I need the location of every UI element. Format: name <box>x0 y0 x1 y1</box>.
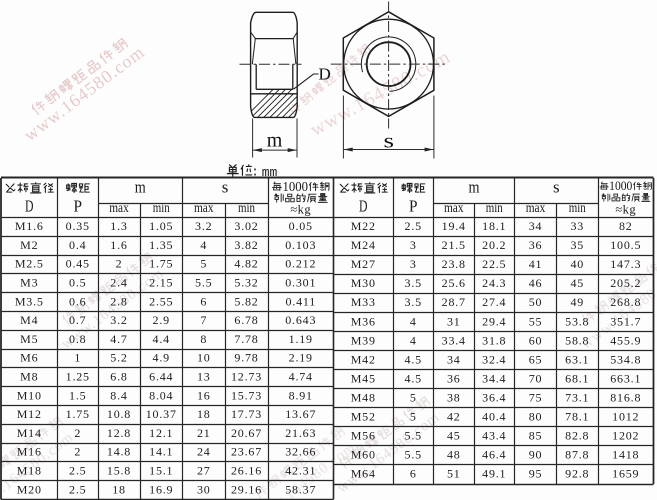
svg-text:1.75: 1.75 <box>66 407 90 421</box>
svg-text:M8: M8 <box>20 370 38 384</box>
svg-text:5.82: 5.82 <box>234 294 258 308</box>
svg-text:33.4: 33.4 <box>442 333 466 347</box>
svg-text:0.212: 0.212 <box>285 257 316 271</box>
svg-text:m: m <box>469 178 480 197</box>
svg-text:10.37: 10.37 <box>146 407 177 421</box>
svg-text:31.8: 31.8 <box>482 333 506 347</box>
svg-text:7.78: 7.78 <box>234 332 258 346</box>
svg-text:25.6: 25.6 <box>442 276 466 290</box>
svg-text:4.9: 4.9 <box>153 351 170 365</box>
svg-text:3.82: 3.82 <box>234 238 258 252</box>
svg-text:6: 6 <box>410 467 417 481</box>
svg-text:1.19: 1.19 <box>289 332 313 346</box>
svg-text:min: min <box>569 201 586 216</box>
svg-text:73.1: 73.1 <box>565 391 589 405</box>
svg-text:7: 7 <box>200 313 207 327</box>
svg-text:43.4: 43.4 <box>482 429 506 443</box>
svg-text:4.74: 4.74 <box>289 370 313 384</box>
svg-text:27.4: 27.4 <box>482 295 506 309</box>
svg-text:2: 2 <box>116 257 123 271</box>
svg-text:min: min <box>238 201 255 216</box>
svg-text:12.8: 12.8 <box>107 426 131 440</box>
svg-text:M36: M36 <box>351 314 376 328</box>
svg-text:23.67: 23.67 <box>231 445 262 459</box>
svg-text:5.5: 5.5 <box>405 448 422 462</box>
svg-text:13.67: 13.67 <box>285 407 316 421</box>
svg-text:0.301: 0.301 <box>285 276 316 290</box>
svg-text:46: 46 <box>529 276 543 290</box>
svg-text:34: 34 <box>529 219 543 233</box>
svg-text:63.1: 63.1 <box>565 352 589 366</box>
svg-text:68.1: 68.1 <box>565 371 589 385</box>
svg-text:0.103: 0.103 <box>285 238 316 252</box>
svg-text:40.4: 40.4 <box>482 410 506 424</box>
svg-text:38: 38 <box>447 391 461 405</box>
svg-text:M16: M16 <box>17 445 42 459</box>
svg-text:92.8: 92.8 <box>565 467 589 481</box>
svg-text:5.32: 5.32 <box>234 276 258 290</box>
svg-text:4: 4 <box>410 333 417 347</box>
svg-text:3.5: 3.5 <box>405 276 422 290</box>
svg-text:s: s <box>553 178 560 197</box>
svg-text:42.31: 42.31 <box>285 464 316 478</box>
svg-text:1.25: 1.25 <box>66 370 90 384</box>
svg-text:24: 24 <box>197 445 211 459</box>
svg-text:45: 45 <box>447 429 461 443</box>
svg-text:205.2: 205.2 <box>610 276 641 290</box>
svg-text:15.8: 15.8 <box>107 464 131 478</box>
svg-text:49.1: 49.1 <box>482 467 506 481</box>
svg-text:49: 49 <box>570 295 584 309</box>
svg-text:min: min <box>153 201 170 216</box>
svg-text:1.75: 1.75 <box>149 257 173 271</box>
svg-text:78.1: 78.1 <box>565 410 589 424</box>
svg-text:17.73: 17.73 <box>231 407 262 421</box>
svg-text:M1.6: M1.6 <box>15 219 44 233</box>
svg-text:2.9: 2.9 <box>153 313 170 327</box>
svg-text:16: 16 <box>197 388 211 402</box>
svg-text:10: 10 <box>197 351 211 365</box>
svg-text:0.5: 0.5 <box>69 276 86 290</box>
svg-text:2.8: 2.8 <box>110 294 127 308</box>
svg-text:2.55: 2.55 <box>149 294 173 308</box>
svg-text:2: 2 <box>74 445 81 459</box>
svg-text:87.8: 87.8 <box>565 448 589 462</box>
svg-text:55: 55 <box>529 314 543 328</box>
svg-text:48: 48 <box>447 448 461 462</box>
svg-text:31: 31 <box>447 314 461 328</box>
svg-text:0.4: 0.4 <box>69 238 86 252</box>
svg-text:M56: M56 <box>351 429 376 443</box>
svg-text:M3.5: M3.5 <box>15 294 44 308</box>
svg-text:6.8: 6.8 <box>110 370 127 384</box>
svg-text:M48: M48 <box>351 391 376 405</box>
svg-text:21: 21 <box>197 426 211 440</box>
svg-text:max: max <box>194 201 214 216</box>
svg-text:82.8: 82.8 <box>565 429 589 443</box>
svg-text:M27: M27 <box>351 257 376 271</box>
svg-text:22.5: 22.5 <box>482 257 506 271</box>
svg-text:15.1: 15.1 <box>149 464 173 478</box>
svg-text:75: 75 <box>529 391 543 405</box>
svg-text:14.8: 14.8 <box>107 445 131 459</box>
svg-text:8: 8 <box>200 332 207 346</box>
svg-text:max: max <box>444 201 464 216</box>
svg-text:M30: M30 <box>351 276 376 290</box>
svg-text:34: 34 <box>447 352 461 366</box>
svg-text:3: 3 <box>410 257 417 271</box>
svg-text:36: 36 <box>447 371 461 385</box>
svg-text:816.8: 816.8 <box>610 391 641 405</box>
svg-text:max: max <box>526 201 546 216</box>
svg-text:1202: 1202 <box>612 429 639 443</box>
svg-text:18: 18 <box>197 407 211 421</box>
svg-text:1.05: 1.05 <box>149 219 173 233</box>
svg-text:90: 90 <box>529 448 543 462</box>
svg-text:30: 30 <box>197 482 211 496</box>
svg-text:21.5: 21.5 <box>442 238 466 252</box>
svg-text:5.5: 5.5 <box>195 276 212 290</box>
svg-text:41: 41 <box>529 257 543 271</box>
svg-text:3.5: 3.5 <box>405 295 422 309</box>
svg-text:2.5: 2.5 <box>69 464 86 478</box>
svg-text:M4: M4 <box>20 313 38 327</box>
svg-text:M18: M18 <box>17 464 42 478</box>
svg-text:4: 4 <box>410 314 417 328</box>
svg-text:m: m <box>135 178 146 197</box>
svg-text:26.16: 26.16 <box>231 464 262 478</box>
svg-text:14.1: 14.1 <box>149 445 173 459</box>
svg-text:M60: M60 <box>351 448 376 462</box>
svg-text:4.4: 4.4 <box>153 332 170 346</box>
svg-text:M33: M33 <box>351 295 376 309</box>
svg-text:351.7: 351.7 <box>610 314 641 328</box>
svg-text:M45: M45 <box>351 371 376 385</box>
svg-text:0.643: 0.643 <box>285 313 316 327</box>
svg-text:M24: M24 <box>351 238 376 252</box>
svg-text:1418: 1418 <box>612 448 639 462</box>
svg-text:65: 65 <box>529 352 543 366</box>
svg-text:M22: M22 <box>351 219 376 233</box>
svg-text:≈kg: ≈kg <box>290 203 311 217</box>
svg-text:663.1: 663.1 <box>610 371 641 385</box>
svg-text:5.2: 5.2 <box>110 351 127 365</box>
svg-text:2.19: 2.19 <box>289 351 313 365</box>
svg-text:D: D <box>319 65 331 84</box>
svg-text:35: 35 <box>570 238 584 252</box>
svg-text:147.3: 147.3 <box>610 257 641 271</box>
svg-text:20.67: 20.67 <box>231 426 262 440</box>
svg-text:M6: M6 <box>20 351 38 365</box>
svg-text:5: 5 <box>410 410 417 424</box>
svg-text:M5: M5 <box>20 332 38 346</box>
svg-text:1000: 1000 <box>609 179 632 193</box>
svg-text:4.7: 4.7 <box>110 332 127 346</box>
svg-text:21.63: 21.63 <box>285 426 316 440</box>
svg-text:2.5: 2.5 <box>405 219 422 233</box>
svg-text:M52: M52 <box>351 410 376 424</box>
svg-text:min: min <box>486 201 503 216</box>
svg-text:s: s <box>222 178 229 197</box>
svg-text:1659: 1659 <box>612 467 639 481</box>
svg-text:46.4: 46.4 <box>482 448 506 462</box>
svg-text:D: D <box>25 197 34 216</box>
svg-text:6.44: 6.44 <box>149 370 173 384</box>
svg-text:P: P <box>409 197 418 216</box>
svg-text:1: 1 <box>74 351 81 365</box>
svg-text:4.82: 4.82 <box>234 257 258 271</box>
svg-text:20.2: 20.2 <box>482 238 506 252</box>
svg-text:32.66: 32.66 <box>285 445 316 459</box>
svg-text:40: 40 <box>570 257 584 271</box>
svg-text:4: 4 <box>200 238 207 252</box>
svg-text:3.2: 3.2 <box>110 313 127 327</box>
svg-text:1012: 1012 <box>612 410 639 424</box>
svg-text:268.8: 268.8 <box>610 295 641 309</box>
svg-text:29.16: 29.16 <box>231 482 262 496</box>
svg-text:3.2: 3.2 <box>195 219 212 233</box>
svg-text:50: 50 <box>529 295 543 309</box>
svg-text:42: 42 <box>447 410 461 424</box>
svg-text:36: 36 <box>529 238 543 252</box>
svg-text:3: 3 <box>410 238 417 252</box>
svg-text:58.37: 58.37 <box>285 482 316 496</box>
svg-text:0.35: 0.35 <box>66 219 90 233</box>
svg-text:12.1: 12.1 <box>149 426 173 440</box>
svg-text:0.8: 0.8 <box>69 332 86 346</box>
svg-text:M3: M3 <box>20 276 38 290</box>
svg-text:5.5: 5.5 <box>405 429 422 443</box>
svg-text:85: 85 <box>529 429 543 443</box>
svg-text:2.4: 2.4 <box>110 276 127 290</box>
svg-text:80: 80 <box>529 410 543 424</box>
svg-text:4.5: 4.5 <box>405 371 422 385</box>
svg-text:M39: M39 <box>351 333 376 347</box>
svg-text:8.91: 8.91 <box>289 388 313 402</box>
svg-text:1.5: 1.5 <box>69 388 86 402</box>
svg-text:51: 51 <box>447 467 461 481</box>
svg-text:M12: M12 <box>17 407 42 421</box>
svg-text:1.3: 1.3 <box>110 219 127 233</box>
svg-text:82: 82 <box>619 219 633 233</box>
svg-text:28.7: 28.7 <box>442 295 466 309</box>
svg-text:8.4: 8.4 <box>110 388 127 402</box>
svg-text:23.8: 23.8 <box>442 257 466 271</box>
svg-text:29.4: 29.4 <box>482 314 506 328</box>
svg-text:0.411: 0.411 <box>285 294 316 308</box>
svg-text:53.8: 53.8 <box>565 314 589 328</box>
svg-text:12.73: 12.73 <box>231 370 262 384</box>
svg-text:M14: M14 <box>17 426 42 440</box>
svg-text:s: s <box>384 131 395 153</box>
svg-text:0.7: 0.7 <box>69 313 86 327</box>
svg-text:0.45: 0.45 <box>66 257 90 271</box>
svg-text:70: 70 <box>529 371 543 385</box>
svg-text:60: 60 <box>529 333 543 347</box>
svg-text:1000: 1000 <box>282 179 308 194</box>
svg-text:0.6: 0.6 <box>69 294 86 308</box>
svg-text:33: 33 <box>570 219 584 233</box>
svg-text:16.9: 16.9 <box>149 482 173 496</box>
svg-text:M20: M20 <box>17 482 42 496</box>
svg-text:max: max <box>109 201 129 216</box>
svg-text:m: m <box>267 130 283 152</box>
svg-text:9.78: 9.78 <box>234 351 258 365</box>
svg-text:5: 5 <box>410 391 417 405</box>
svg-text:M2.5: M2.5 <box>15 257 44 271</box>
svg-text:36.4: 36.4 <box>482 391 506 405</box>
svg-text:18: 18 <box>112 482 126 496</box>
svg-text:M64: M64 <box>351 467 376 481</box>
svg-text:M2: M2 <box>20 238 38 252</box>
svg-text:D: D <box>359 197 368 216</box>
svg-text:5: 5 <box>200 257 207 271</box>
svg-text:4.5: 4.5 <box>405 352 422 366</box>
svg-text:45: 45 <box>570 276 584 290</box>
svg-text:95: 95 <box>529 467 543 481</box>
svg-text:M42: M42 <box>351 352 376 366</box>
svg-text:58.8: 58.8 <box>565 333 589 347</box>
svg-text:534.8: 534.8 <box>610 352 641 366</box>
svg-text:6: 6 <box>200 294 207 308</box>
svg-text:32.4: 32.4 <box>482 352 506 366</box>
svg-text:13: 13 <box>197 370 211 384</box>
svg-text:2.5: 2.5 <box>69 482 86 496</box>
svg-text:24.3: 24.3 <box>482 276 506 290</box>
svg-text:M10: M10 <box>17 388 42 402</box>
svg-text:100.5: 100.5 <box>610 238 641 252</box>
svg-text:27: 27 <box>197 464 211 478</box>
svg-text:15.73: 15.73 <box>231 388 262 402</box>
svg-text:18.1: 18.1 <box>482 219 506 233</box>
svg-text:34.4: 34.4 <box>482 371 506 385</box>
svg-text:≈kg: ≈kg <box>615 203 636 217</box>
svg-text:455.9: 455.9 <box>610 333 641 347</box>
svg-text:1.35: 1.35 <box>149 238 173 252</box>
svg-text:8.04: 8.04 <box>149 388 173 402</box>
svg-text:19.4: 19.4 <box>442 219 466 233</box>
svg-text:P: P <box>74 197 83 216</box>
svg-text:3.02: 3.02 <box>234 219 258 233</box>
svg-text:1.6: 1.6 <box>110 238 127 252</box>
svg-text:2: 2 <box>74 426 81 440</box>
svg-text:0.05: 0.05 <box>289 219 313 233</box>
svg-text:6.78: 6.78 <box>234 313 258 327</box>
svg-text:10.8: 10.8 <box>107 407 131 421</box>
svg-text:2.15: 2.15 <box>149 276 173 290</box>
